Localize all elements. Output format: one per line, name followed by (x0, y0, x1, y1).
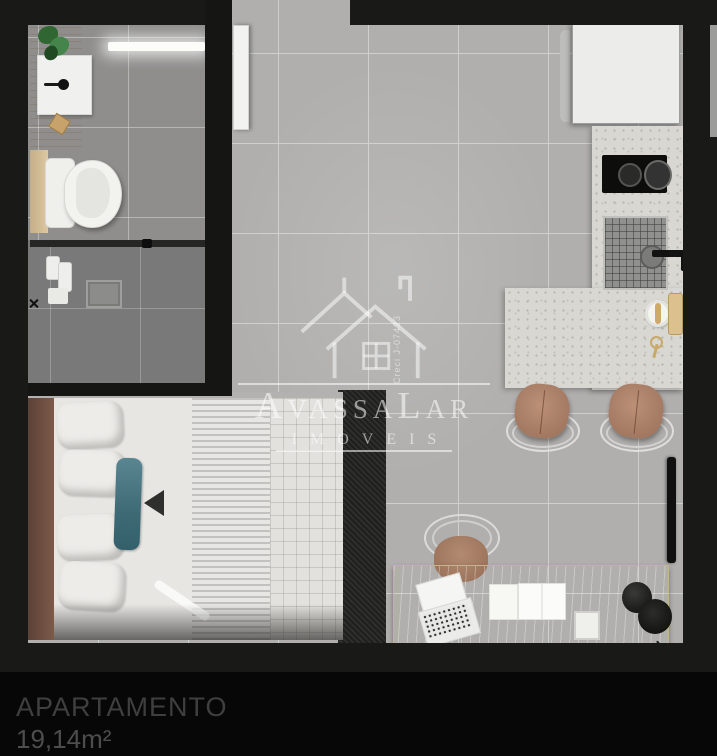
wooden-spoon (655, 303, 661, 324)
bed-icon (28, 392, 343, 643)
apartment-name: APARTAMENTO (16, 692, 228, 723)
plant-icon (38, 24, 74, 64)
wall-top-left (0, 0, 232, 25)
notebook (518, 583, 566, 620)
bar-stool (506, 384, 578, 452)
fridge-handle (560, 30, 570, 122)
shower-door-handle (142, 239, 152, 248)
floorplan-render: Creci J-07423 AvassaLar IMOVEIS APARTAME… (0, 0, 717, 756)
rug (338, 390, 386, 643)
sink-disposal (640, 245, 664, 269)
bathroom-faucet-knob (58, 79, 69, 90)
apartment-area: 19,14m² (16, 724, 111, 755)
desk-box (574, 611, 600, 640)
toilet-seat (76, 168, 110, 218)
burner (644, 160, 672, 190)
notebook (489, 584, 518, 620)
shower-glass-screen (30, 240, 207, 247)
bar-stool (600, 384, 672, 452)
mirror-light-strip (108, 42, 205, 51)
fridge-icon (572, 23, 680, 124)
wall-left (0, 0, 28, 672)
balcony-edge (710, 25, 717, 137)
headboard (28, 398, 54, 640)
bed-foot-shadow (54, 604, 343, 640)
wall-bottom (0, 643, 717, 672)
bathroom-door (233, 25, 249, 130)
keys (648, 336, 662, 358)
pillow (56, 400, 124, 449)
burner (618, 163, 642, 187)
bath-mat (48, 288, 68, 304)
wall-top-right (350, 0, 717, 25)
cooktop-icon (602, 155, 667, 193)
tv-icon (667, 457, 676, 563)
caption-bar: APARTAMENTO 19,14m² (0, 672, 717, 756)
bathroom-wall (205, 0, 232, 392)
floor-drain-icon (28, 298, 39, 309)
shower-drain (86, 280, 122, 308)
bathroom-wall (25, 383, 232, 396)
accent-pillow (113, 458, 142, 551)
cutting-board (668, 293, 683, 335)
